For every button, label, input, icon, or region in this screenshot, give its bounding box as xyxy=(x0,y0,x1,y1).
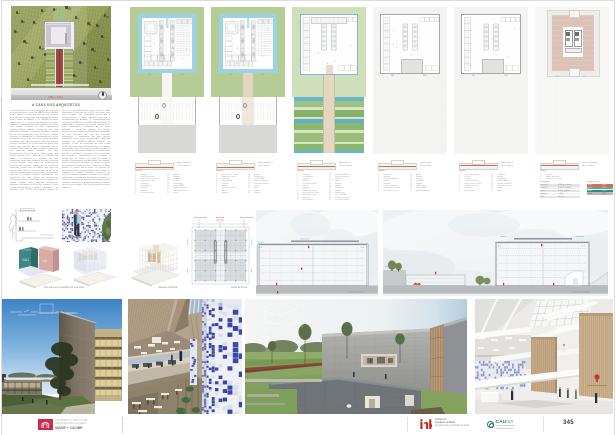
svg-text:IAB: IAB xyxy=(42,259,47,263)
svg-text:parede: parede xyxy=(186,239,189,245)
svg-text:cobertura: cobertura xyxy=(300,237,310,240)
svg-text:_ corte longitudinal: _ corte longitudinal xyxy=(570,291,590,294)
svg-text:laje nervurada: laje nervurada xyxy=(240,217,254,219)
svg-text:laje nervurada: laje nervurada xyxy=(194,217,208,219)
svg-text:terreno: terreno xyxy=(385,265,392,268)
svg-text:acesso: acesso xyxy=(500,236,507,238)
svg-text:_ corte transversal: _ corte transversal xyxy=(345,291,365,294)
svg-text:CAU: CAU xyxy=(22,258,29,262)
svg-text:concreto: concreto xyxy=(216,218,225,221)
svg-text:apoio: apoio xyxy=(251,268,253,273)
svg-text:cobertura: cobertura xyxy=(575,235,585,238)
svg-text:apoio: apoio xyxy=(187,268,189,273)
svg-text:+9.00: +9.00 xyxy=(258,242,264,244)
svg-text:parede: parede xyxy=(250,239,253,245)
